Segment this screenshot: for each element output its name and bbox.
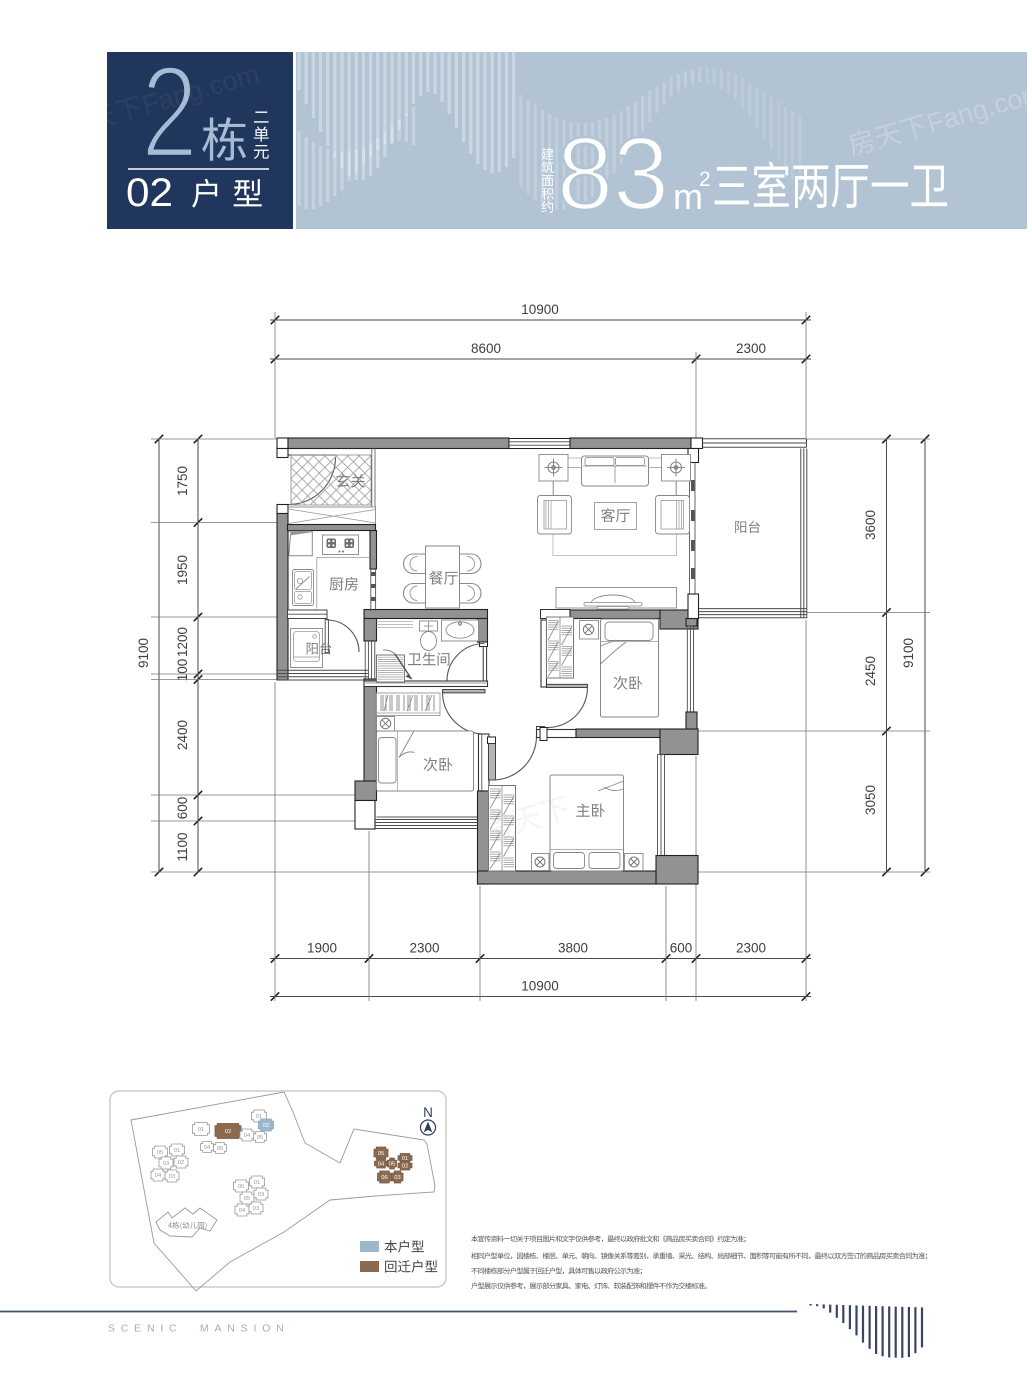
svg-text:04: 04 (155, 1173, 162, 1179)
svg-text:03: 03 (169, 1174, 175, 1180)
svg-text:04: 04 (239, 1208, 246, 1214)
svg-text:2: 2 (699, 168, 711, 191)
svg-text:02: 02 (126, 171, 173, 215)
svg-text:02: 02 (225, 1129, 231, 1135)
svg-text:N: N (423, 1105, 433, 1120)
svg-text:05: 05 (389, 1162, 395, 1168)
svg-text:1200: 1200 (175, 627, 190, 657)
svg-text:02: 02 (263, 1123, 269, 1129)
svg-text:02: 02 (402, 1164, 408, 1170)
svg-text:05: 05 (244, 1196, 250, 1202)
svg-text:02: 02 (178, 1160, 184, 1166)
svg-text:9100: 9100 (136, 638, 151, 668)
svg-text:05: 05 (217, 1146, 223, 1152)
svg-text:1750: 1750 (175, 466, 190, 496)
svg-text:2300: 2300 (409, 941, 439, 956)
svg-text:03: 03 (394, 1175, 400, 1181)
svg-text:04: 04 (378, 1162, 385, 1168)
svg-text:83: 83 (557, 116, 669, 231)
svg-text:04: 04 (244, 1133, 251, 1139)
svg-text:2300: 2300 (736, 941, 766, 956)
svg-text:3800: 3800 (558, 941, 588, 956)
svg-text:01: 01 (198, 1127, 204, 1133)
svg-text:10900: 10900 (521, 979, 559, 994)
svg-text:600: 600 (175, 797, 190, 820)
svg-text:3050: 3050 (863, 785, 878, 815)
svg-text:03: 03 (253, 1206, 259, 1212)
svg-text:03: 03 (163, 1161, 169, 1167)
svg-text:01: 01 (254, 1180, 260, 1186)
svg-text:01: 01 (174, 1148, 180, 1154)
svg-text:9100: 9100 (901, 638, 916, 668)
svg-text:1950: 1950 (175, 555, 190, 585)
svg-text:03: 03 (258, 1192, 264, 1198)
svg-text:05: 05 (257, 1135, 263, 1141)
svg-text:8600: 8600 (471, 341, 501, 356)
svg-text:600: 600 (670, 941, 693, 956)
svg-text:2300: 2300 (736, 341, 766, 356)
svg-text:1900: 1900 (307, 941, 337, 956)
svg-text:1100: 1100 (175, 832, 190, 861)
svg-text:2400: 2400 (175, 720, 190, 750)
svg-text:2450: 2450 (863, 656, 878, 686)
svg-text:SCENIC MANSION: SCENIC MANSION (108, 1323, 290, 1335)
svg-text:06: 06 (381, 1175, 387, 1181)
svg-text:3600: 3600 (863, 510, 878, 540)
svg-text:05: 05 (378, 1151, 384, 1157)
svg-text:05: 05 (157, 1150, 163, 1156)
svg-text:10900: 10900 (521, 302, 559, 317)
svg-text:100: 100 (175, 659, 190, 682)
svg-text:04: 04 (204, 1145, 211, 1151)
svg-text:05: 05 (238, 1184, 244, 1190)
